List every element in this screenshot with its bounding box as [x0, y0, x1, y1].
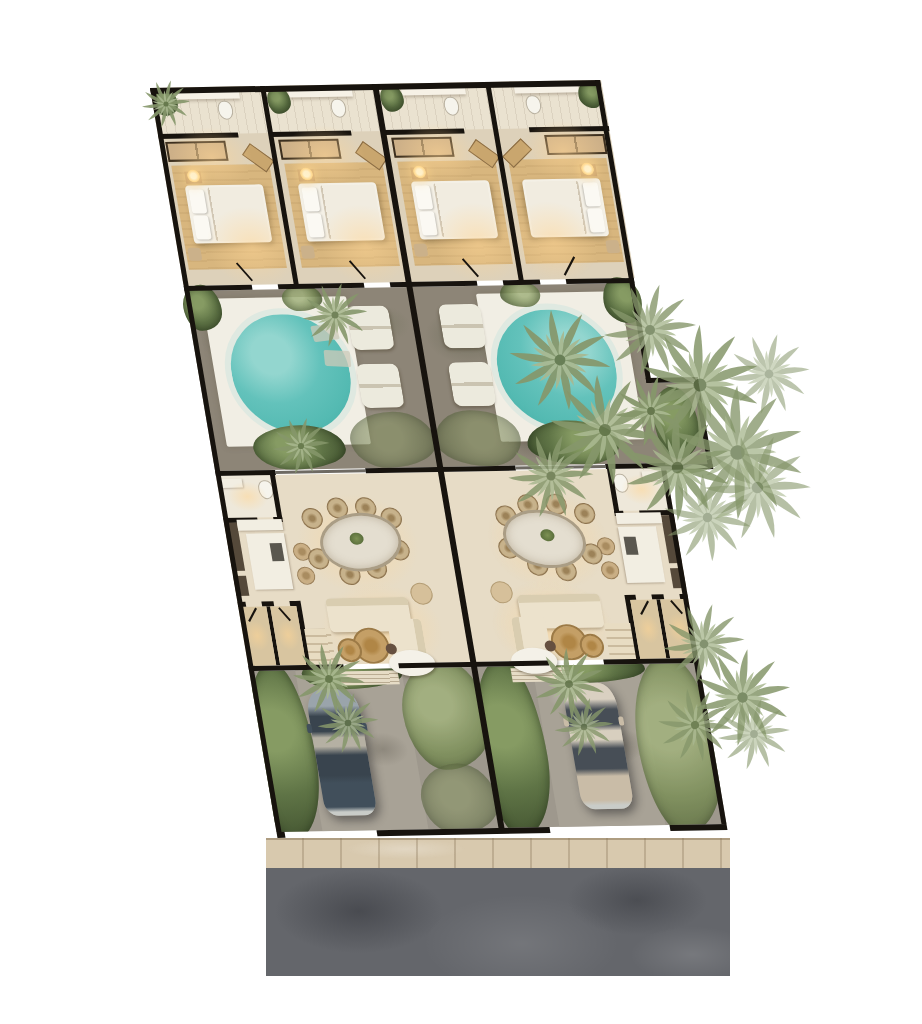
pool-deck	[202, 296, 371, 447]
street-wall	[669, 824, 727, 831]
driveway-right	[474, 663, 726, 828]
entry-steps	[339, 670, 399, 685]
palm-tree	[725, 330, 813, 418]
sun-lounger	[346, 305, 395, 350]
plunge-pool	[481, 302, 633, 434]
dining-area	[300, 499, 415, 585]
pillow	[193, 215, 212, 239]
bath-wall	[158, 133, 239, 139]
palm-tree	[715, 695, 793, 773]
plunge-pool	[215, 307, 367, 439]
twin-villa-building	[150, 80, 728, 838]
asphalt-road	[266, 868, 730, 976]
courtyard-left	[185, 287, 441, 471]
courtyard-right	[410, 283, 666, 467]
sun-lounger	[447, 362, 496, 407]
stairs	[304, 628, 336, 664]
sun-lounger	[438, 304, 487, 349]
bar-stool	[296, 567, 317, 585]
driveway-left	[249, 667, 501, 832]
street-wall	[276, 832, 285, 838]
living-right	[441, 468, 698, 662]
kitchen-island	[246, 533, 294, 590]
living-left	[216, 472, 473, 666]
dining-chair	[299, 506, 326, 530]
sun-lounger	[355, 363, 404, 408]
stepping-stone	[323, 350, 351, 367]
stool	[187, 248, 202, 261]
stepping-stone	[310, 323, 340, 342]
pillow	[188, 189, 207, 213]
double-bed	[185, 184, 273, 243]
wardrobe	[165, 141, 228, 162]
duvet	[207, 186, 270, 241]
sidewalk	[266, 838, 730, 870]
kitchen-counter	[236, 519, 283, 531]
armchair	[409, 582, 435, 604]
site-plan-canvas	[0, 0, 922, 1024]
